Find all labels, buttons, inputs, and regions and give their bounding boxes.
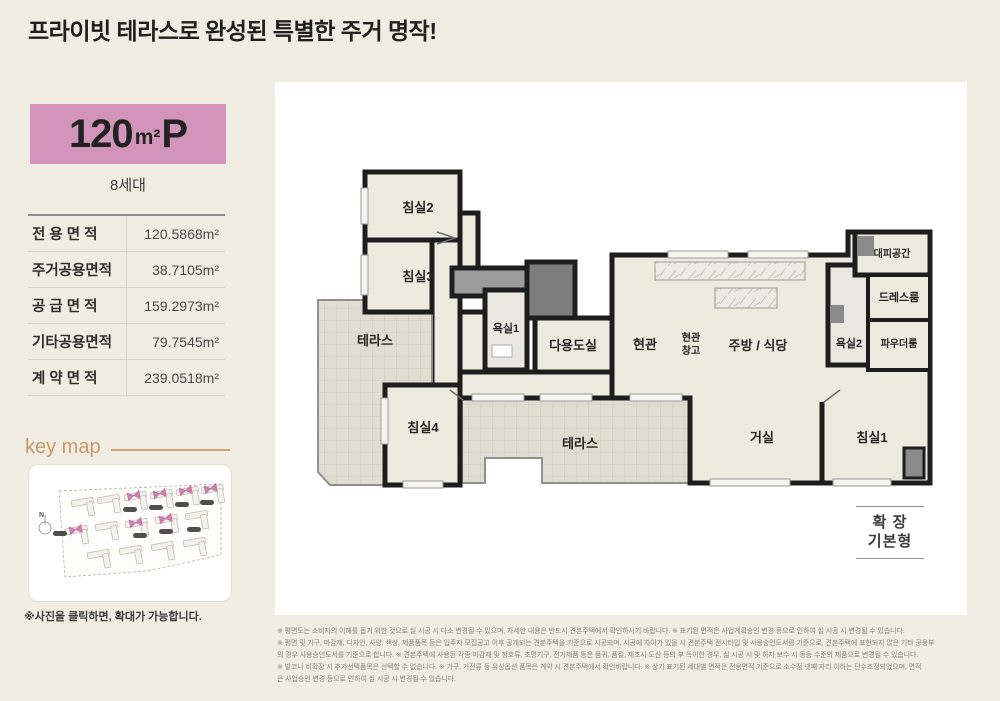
disclaimer-line: 의 경우 사용승인도서를 기준으로 합니다. ※ 견본주택에 사용된 각종 마감… bbox=[277, 650, 967, 662]
disclaimer-line: ※ 평면 및 가구, 마감재, 디자인, 사양, 색상, 제품품목 등은 입주자… bbox=[277, 638, 967, 650]
room-label-entry: 현관 bbox=[633, 337, 657, 352]
room-label-terrace-bottom: 테라스 bbox=[562, 436, 598, 451]
room-label-living: 거실 bbox=[750, 430, 774, 445]
area-label: 주거공용면적 bbox=[28, 252, 127, 287]
keymap-card[interactable]: N bbox=[28, 464, 232, 602]
kitchen-counter bbox=[655, 262, 805, 280]
disclaimer-line: 은 사업승인 변경 등으로 인하여 실 시공 시 변경될 수 있습니다. bbox=[277, 674, 967, 686]
unit-type-badge: 120 m² P bbox=[30, 104, 226, 164]
room-label-powder: 파우더룸 bbox=[881, 337, 918, 350]
page-title: 프라이빗 테라스로 완성된 특별한 주거 명작! bbox=[28, 12, 437, 46]
room-label-bath2: 욕실2 bbox=[836, 336, 862, 350]
area-label: 계 약 면 적 bbox=[28, 360, 127, 395]
plan-type-legend: 확 장 기본형 bbox=[856, 506, 924, 559]
area-label: 공 급 면 적 bbox=[28, 288, 127, 323]
bedroom1-closet bbox=[904, 448, 924, 478]
room-label-bath1: 욕실1 bbox=[493, 321, 519, 335]
floorplan-image[interactable]: 침실2 침실3 테라스 침실4 욕실1 다용도실 현관 현관 창고 주방 / 식… bbox=[300, 140, 960, 520]
room-label-bed3: 침실3 bbox=[402, 269, 433, 284]
area-label: 전 용 면 적 bbox=[28, 216, 127, 251]
area-table-row: 기타공용면적 79.7545m² bbox=[28, 324, 225, 360]
keymap-site-plan: N bbox=[29, 465, 231, 601]
room-label-bed2: 침실2 bbox=[402, 200, 433, 215]
room-label-bed1: 침실1 bbox=[856, 430, 887, 445]
room-label-kitchen: 주방 / 식당 bbox=[729, 338, 788, 353]
keymap-header: key map bbox=[25, 436, 230, 459]
room-label-refuge: 대피공간 bbox=[874, 247, 912, 260]
area-table-row: 공 급 면 적 159.2973m² bbox=[28, 288, 225, 324]
area-value: 239.0518m² bbox=[127, 370, 225, 386]
room-label-utility: 다용도실 bbox=[549, 338, 597, 353]
disclaimer-line: ※ 발코니 비확장 시 추가선택품목은 선택할 수 없습니다. ※ 가구, 가전… bbox=[277, 662, 967, 674]
compass-label: N bbox=[39, 512, 44, 519]
kitchen-island bbox=[715, 288, 777, 308]
unit-size-number: 120 bbox=[69, 112, 133, 157]
area-table-row: 전 용 면 적 120.5868m² bbox=[28, 216, 225, 252]
legend-line2: 기본형 bbox=[856, 532, 924, 551]
room-label-entry-storage: 현관 bbox=[682, 331, 701, 344]
area-table-row: 계 약 면 적 239.0518m² bbox=[28, 360, 225, 396]
area-value: 159.2973m² bbox=[127, 298, 225, 314]
disclaimer-line: ※ 평면도는 소비자의 이해를 돕기 위한 것으로 실 시공 시 다소 변경될 … bbox=[277, 626, 967, 638]
keymap-heading: key map bbox=[25, 436, 101, 459]
area-value: 38.7105m² bbox=[127, 262, 225, 278]
area-value: 79.7545m² bbox=[127, 334, 225, 350]
hallway bbox=[432, 240, 460, 398]
room-label-terrace-left: 테라스 bbox=[357, 333, 393, 348]
wall-jog bbox=[460, 213, 478, 268]
legend-line1: 확 장 bbox=[856, 513, 924, 532]
household-count: 8세대 bbox=[30, 174, 226, 195]
area-value: 120.5868m² bbox=[127, 226, 225, 242]
keymap-note: ※사진을 클릭하면, 확대가 가능합니다. bbox=[24, 608, 202, 624]
area-table-row: 주거공용면적 38.7105m² bbox=[28, 252, 225, 288]
unit-size-unit: m² bbox=[135, 126, 161, 150]
room-label-dress: 드레스룸 bbox=[879, 290, 919, 304]
bedroom4-area bbox=[385, 385, 460, 485]
unit-size-suffix: P bbox=[161, 112, 187, 157]
area-table: 전 용 면 적 120.5868m² 주거공용면적 38.7105m² 공 급 … bbox=[28, 214, 225, 396]
disclaimer: ※ 평면도는 소비자의 이해를 돕기 위한 것으로 실 시공 시 다소 변경될 … bbox=[277, 626, 967, 686]
page: 프라이빗 테라스로 완성된 특별한 주거 명작! 120 m² P 8세대 전 … bbox=[0, 0, 1000, 701]
room-label-entry-storage: 창고 bbox=[682, 344, 700, 357]
keymap-divider bbox=[111, 449, 230, 451]
room-label-bed4: 침실4 bbox=[407, 420, 439, 435]
area-label: 기타공용면적 bbox=[28, 324, 127, 359]
service-core-dark bbox=[527, 262, 575, 318]
